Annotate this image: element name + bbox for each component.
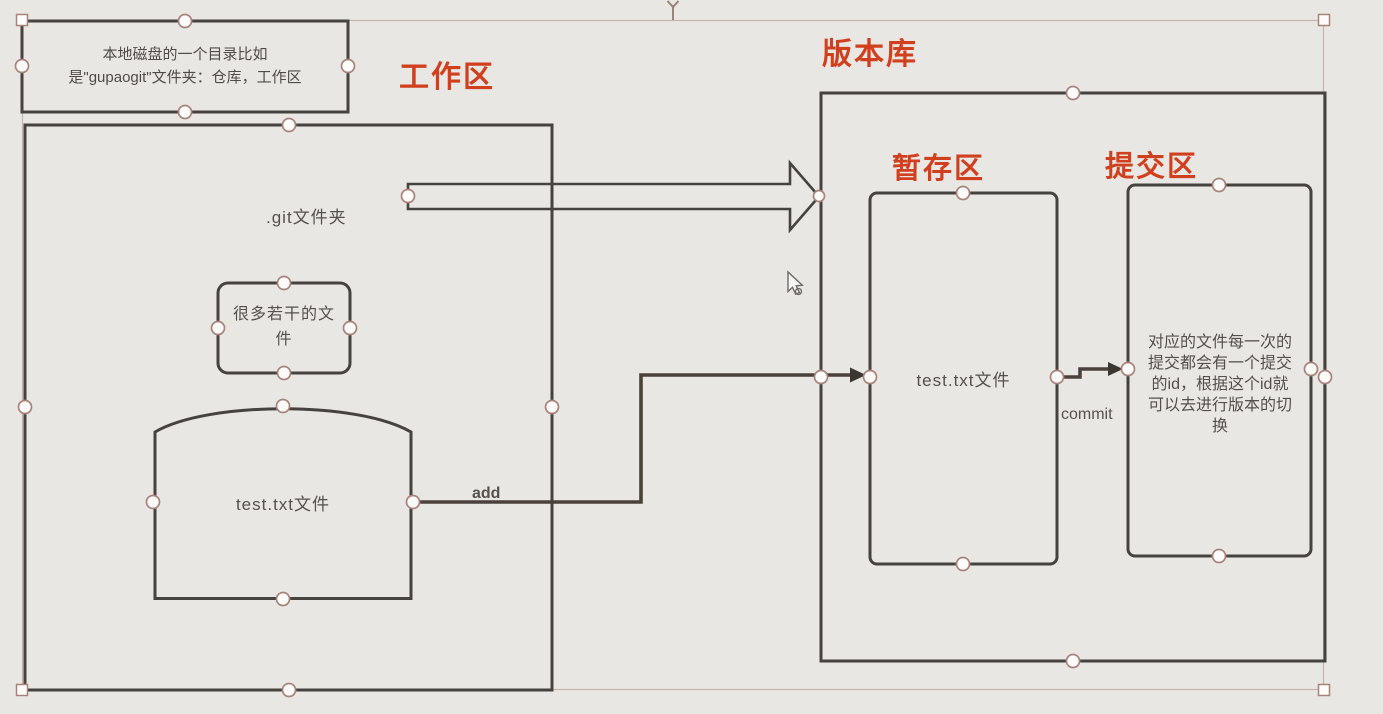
- commit-area-title[interactable]: 提交区: [1105, 143, 1198, 185]
- selection-corner-handles[interactable]: [17, 15, 1330, 696]
- commit-arrow-label[interactable]: commit: [1061, 406, 1113, 424]
- worktree-file-label: test.txt文件: [155, 434, 411, 570]
- work-area-title[interactable]: 工作区: [399, 52, 495, 96]
- commit-id-note-text: 对应的文件每一次的 提交都会有一个提交 的id，根据这个id就 可以去进行版本的…: [1136, 317, 1304, 452]
- staged-file-label: test.txt文件: [870, 193, 1057, 564]
- repository-title[interactable]: 版本库: [822, 29, 918, 73]
- big-hollow-arrow[interactable]: [408, 163, 819, 230]
- selection-handle-bottom-right[interactable]: [1319, 685, 1330, 696]
- commit-arrow-line[interactable]: [1057, 369, 1110, 377]
- add-arrow-line[interactable]: [413, 375, 851, 502]
- selection-handle-bottom-left[interactable]: [17, 685, 28, 696]
- many-files-label: 很多若干的文 件: [218, 283, 350, 373]
- shape-handles[interactable]: [16, 15, 1332, 697]
- git-folder-label[interactable]: .git文件夹: [266, 203, 347, 228]
- rotation-handle[interactable]: [668, 1, 679, 20]
- diagram-canvas: 本地磁盘的一个目录比如 是"gupaogit"文件夹：仓库，工作区 工作区 版本…: [0, 0, 1383, 714]
- staging-area-title[interactable]: 暂存区: [892, 145, 985, 187]
- add-arrow-label[interactable]: add: [472, 485, 500, 503]
- arrow-cursor-icon: [788, 272, 802, 295]
- local-disk-note-text: 本地磁盘的一个目录比如 是"gupaogit"文件夹：仓库，工作区: [22, 21, 348, 112]
- selection-handle-top-right[interactable]: [1319, 15, 1330, 26]
